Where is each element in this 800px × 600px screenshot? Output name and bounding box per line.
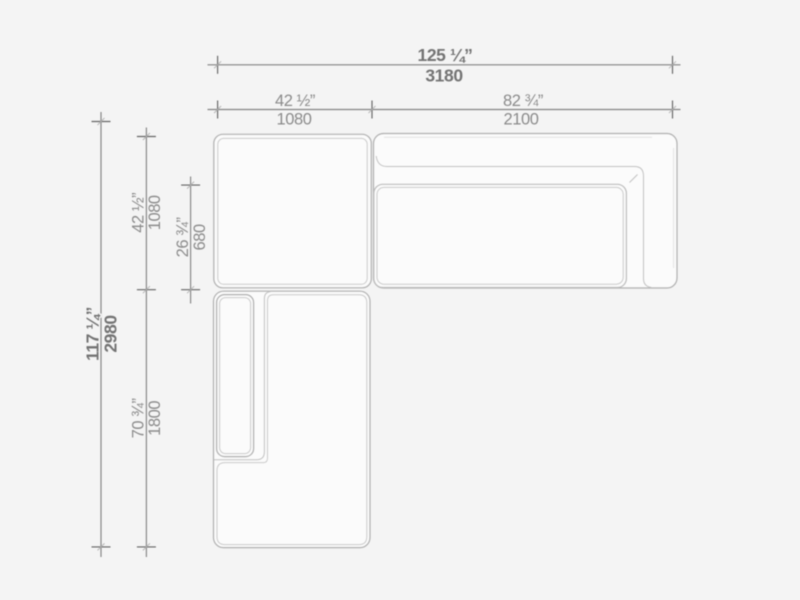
svg-text:70 ¾”: 70 ¾”	[129, 398, 147, 438]
svg-text:42 ½”: 42 ½”	[129, 193, 147, 233]
svg-text:42 ½”: 42 ½”	[275, 92, 315, 110]
svg-text:1080: 1080	[146, 195, 164, 230]
svg-text:680: 680	[191, 224, 209, 250]
svg-text:2100: 2100	[504, 111, 539, 129]
svg-text:82 ¾”: 82 ¾”	[503, 92, 543, 110]
svg-text:1080: 1080	[277, 111, 312, 129]
svg-text:3180: 3180	[425, 65, 463, 85]
svg-text:125 ¼”: 125 ¼”	[417, 45, 472, 65]
svg-text:1800: 1800	[146, 401, 164, 436]
svg-text:2980: 2980	[100, 315, 120, 353]
svg-text:117 ¼”: 117 ¼”	[82, 307, 102, 361]
svg-text:26 ¾”: 26 ¾”	[174, 217, 192, 257]
